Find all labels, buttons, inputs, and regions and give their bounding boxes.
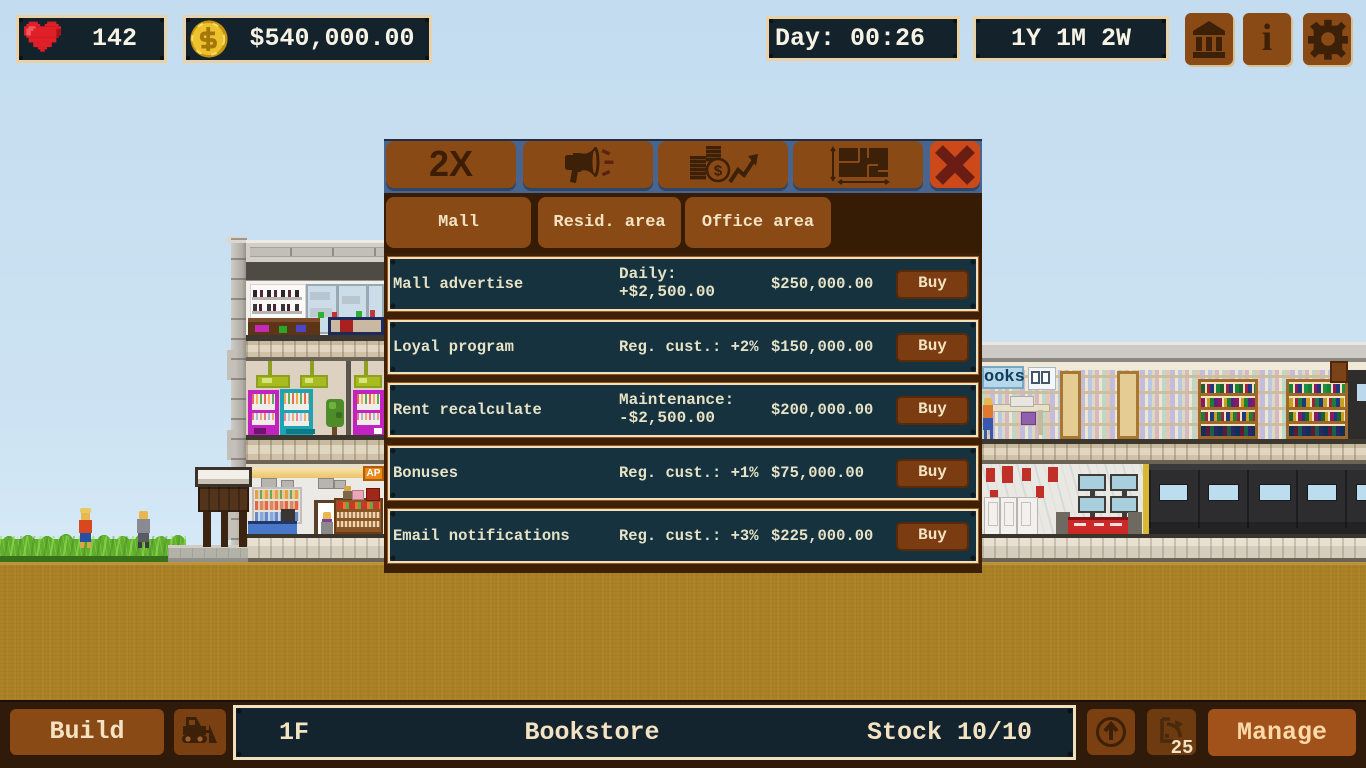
svg-text:$: $ bbox=[714, 163, 723, 180]
